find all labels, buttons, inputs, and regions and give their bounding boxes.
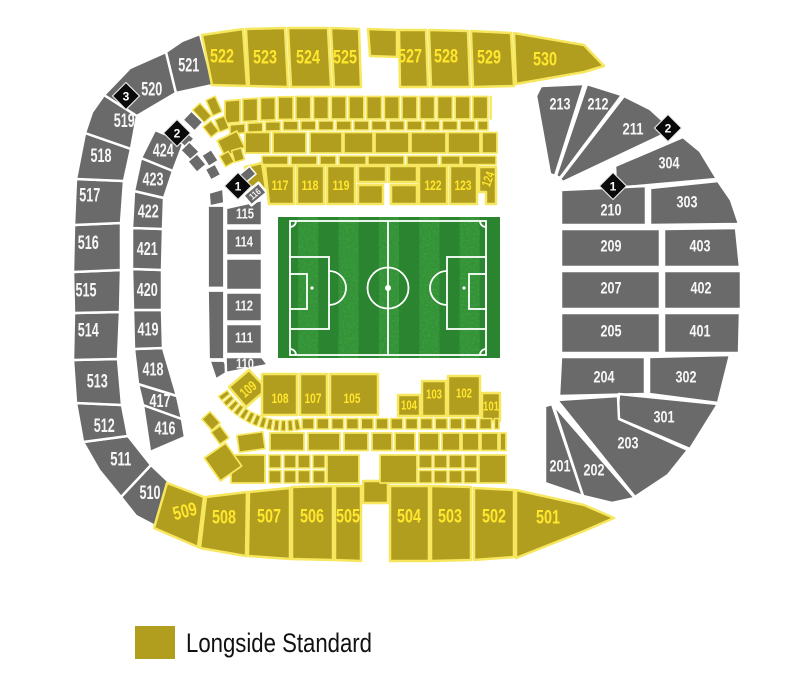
svg-text:528: 528 (434, 47, 458, 68)
svg-text:302: 302 (676, 368, 697, 387)
svg-text:530: 530 (533, 50, 557, 71)
svg-text:1: 1 (235, 180, 242, 194)
svg-text:1: 1 (610, 180, 617, 194)
svg-text:107: 107 (305, 390, 322, 406)
svg-text:213: 213 (550, 95, 571, 114)
svg-text:522: 522 (210, 47, 234, 68)
svg-text:424: 424 (153, 140, 174, 160)
svg-text:524: 524 (296, 48, 320, 69)
svg-text:301: 301 (654, 408, 675, 427)
svg-text:422: 422 (138, 202, 159, 222)
svg-text:112: 112 (235, 298, 253, 315)
svg-text:505: 505 (336, 507, 360, 528)
svg-text:403: 403 (690, 237, 711, 256)
svg-text:503: 503 (438, 507, 462, 528)
svg-text:108: 108 (272, 390, 289, 406)
svg-text:115: 115 (236, 206, 254, 223)
svg-text:525: 525 (333, 48, 357, 69)
svg-text:119: 119 (333, 177, 350, 193)
svg-text:204: 204 (594, 368, 615, 387)
svg-text:3: 3 (123, 90, 130, 104)
svg-text:102: 102 (456, 386, 472, 401)
svg-text:418: 418 (143, 359, 164, 379)
svg-text:520: 520 (141, 80, 162, 101)
svg-text:118: 118 (302, 177, 319, 193)
svg-text:402: 402 (691, 279, 712, 298)
svg-text:203: 203 (618, 434, 639, 453)
svg-text:523: 523 (253, 48, 277, 69)
svg-text:419: 419 (138, 319, 159, 339)
svg-text:506: 506 (300, 507, 324, 528)
svg-text:105: 105 (344, 390, 361, 406)
svg-text:104: 104 (401, 398, 418, 413)
svg-text:513: 513 (87, 371, 108, 392)
svg-text:103: 103 (426, 387, 442, 402)
svg-text:518: 518 (91, 146, 112, 167)
svg-text:507: 507 (257, 507, 281, 528)
svg-text:123: 123 (455, 177, 472, 193)
svg-text:516: 516 (78, 233, 99, 254)
svg-text:207: 207 (601, 279, 622, 298)
svg-text:510: 510 (140, 483, 161, 504)
svg-text:517: 517 (79, 186, 100, 207)
svg-text:303: 303 (677, 193, 698, 212)
svg-text:521: 521 (178, 56, 199, 77)
svg-text:117: 117 (272, 177, 289, 193)
svg-text:211: 211 (623, 120, 644, 139)
svg-text:529: 529 (477, 48, 501, 69)
svg-text:101: 101 (483, 399, 499, 414)
svg-text:416: 416 (155, 418, 176, 438)
svg-text:515: 515 (76, 280, 97, 301)
svg-text:508: 508 (212, 508, 236, 529)
svg-text:420: 420 (137, 280, 158, 300)
svg-text:110: 110 (236, 356, 254, 373)
svg-text:511: 511 (110, 450, 131, 471)
svg-text:527: 527 (398, 47, 422, 68)
svg-text:205: 205 (601, 322, 622, 341)
svg-text:2: 2 (174, 127, 181, 141)
svg-text:501: 501 (536, 508, 560, 529)
svg-text:201: 201 (550, 457, 571, 476)
svg-text:401: 401 (690, 322, 711, 341)
svg-text:304: 304 (659, 154, 680, 173)
svg-text:212: 212 (588, 95, 609, 114)
svg-text:Longside Standard: Longside Standard (186, 628, 372, 658)
svg-text:514: 514 (78, 321, 99, 342)
svg-text:202: 202 (584, 461, 605, 480)
svg-text:114: 114 (235, 234, 253, 251)
svg-text:210: 210 (601, 201, 622, 220)
svg-text:504: 504 (397, 507, 421, 528)
svg-text:209: 209 (601, 237, 622, 256)
svg-text:512: 512 (94, 416, 115, 437)
svg-text:2: 2 (665, 122, 672, 136)
svg-text:122: 122 (425, 177, 442, 193)
svg-text:111: 111 (235, 330, 253, 347)
svg-text:502: 502 (482, 507, 506, 528)
svg-text:421: 421 (137, 239, 158, 259)
svg-text:423: 423 (143, 170, 164, 190)
